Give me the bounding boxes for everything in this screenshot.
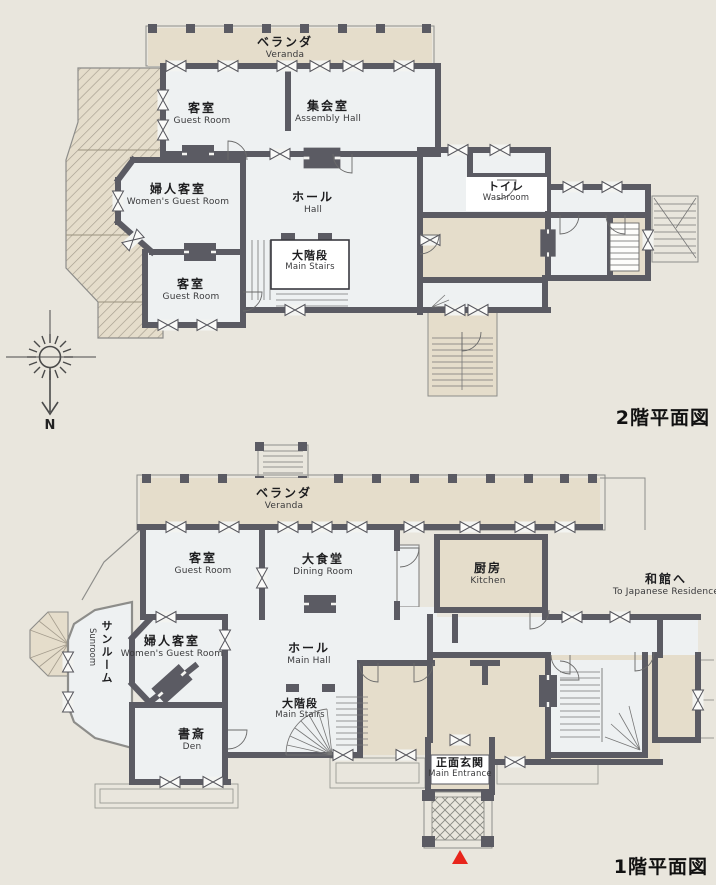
vestibule-area <box>360 663 430 755</box>
entrance-label-box <box>431 755 489 784</box>
room-label-sunroom-en: Sunroom <box>87 628 97 666</box>
entrance-porch <box>422 790 494 848</box>
floor-plan-document: ベランダVeranda 客室Guest Room 集会室Assembly Hal… <box>0 0 716 885</box>
back-stairs-2f <box>610 223 639 271</box>
exterior-stair-east-2f <box>652 196 698 262</box>
floor2-drawing <box>66 24 698 396</box>
bay-turret-1f <box>30 612 68 676</box>
floor2-title: 2階平面図 <box>616 403 710 430</box>
entrance-marker-icon <box>452 850 468 864</box>
floor1-drawing <box>30 442 714 864</box>
room-label-sunroom-jp: サンルーム <box>98 620 114 685</box>
plan-drawing <box>0 0 716 885</box>
floor1-title: 1階平面図 <box>614 852 708 879</box>
main-stairs-label-box-2f <box>271 240 349 289</box>
kitchen-area <box>437 537 545 610</box>
compass-north-label: N <box>45 418 56 433</box>
compass-icon <box>6 310 96 414</box>
veranda-1f-area <box>140 478 600 527</box>
washroom-label-box <box>466 177 547 211</box>
veranda-2f-area <box>148 28 432 66</box>
exterior-stair-south-2f <box>428 312 497 396</box>
